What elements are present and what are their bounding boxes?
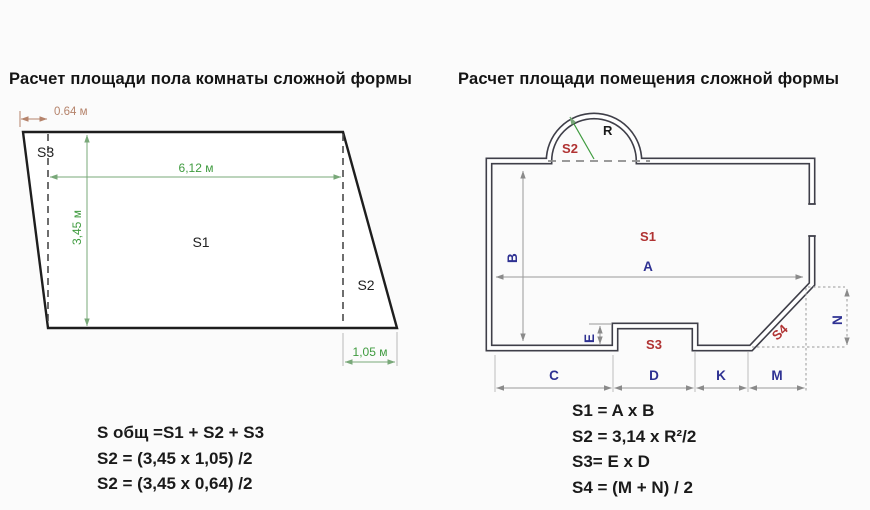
dim-b-label: B: [505, 253, 520, 263]
left-s1-label: S1: [192, 234, 209, 250]
formula-line: S общ =S1 + S2 + S3: [97, 420, 264, 446]
formula-line: S1 = A x B: [572, 398, 696, 424]
left-s2-label: S2: [357, 277, 374, 293]
dim-e-label: E: [582, 334, 597, 343]
left-room-diagram: 0.64 м 6,12 м 3,45 м 1,05 м S3 S1 S2: [20, 106, 397, 366]
dim-064-label: 0.64 м: [54, 106, 88, 118]
right-s2-label: S2: [562, 141, 578, 156]
dim-345-label: 3,45 м: [70, 210, 84, 245]
dim-c-label: C: [549, 368, 559, 383]
formula-line: S2 = (3,45 x 0,64) /2: [97, 471, 264, 497]
right-s3-label: S3: [646, 337, 662, 352]
dim-m-label: M: [771, 368, 782, 383]
dim-k-label: K: [716, 368, 726, 383]
page: Расчет площади пола комнаты сложной форм…: [0, 0, 870, 510]
right-floorplan-diagram: R S2 S1 A B C D K M: [489, 116, 847, 392]
dim-a-label: A: [643, 259, 653, 274]
formula-line: S2 = 3,14 x R²/2: [572, 424, 696, 450]
left-formula-block: S общ =S1 + S2 + S3 S2 = (3,45 x 1,05) /…: [97, 420, 264, 497]
formula-line: S3= E x D: [572, 449, 696, 475]
formula-line: S2 = (3,45 x 1,05) /2: [97, 446, 264, 472]
dim-105-label: 1,05 м: [353, 345, 388, 359]
dim-d-label: D: [649, 368, 659, 383]
dim-n-label: N: [830, 315, 845, 325]
left-s3-label: S3: [37, 144, 54, 160]
dim-612-label: 6,12 м: [179, 161, 214, 175]
right-s1-label: S1: [640, 229, 656, 244]
radius-label: R: [603, 123, 613, 138]
right-formula-block: S1 = A x B S2 = 3,14 x R²/2 S3= E x D S4…: [572, 398, 696, 500]
formula-line: S4 = (M + N) / 2: [572, 475, 696, 501]
